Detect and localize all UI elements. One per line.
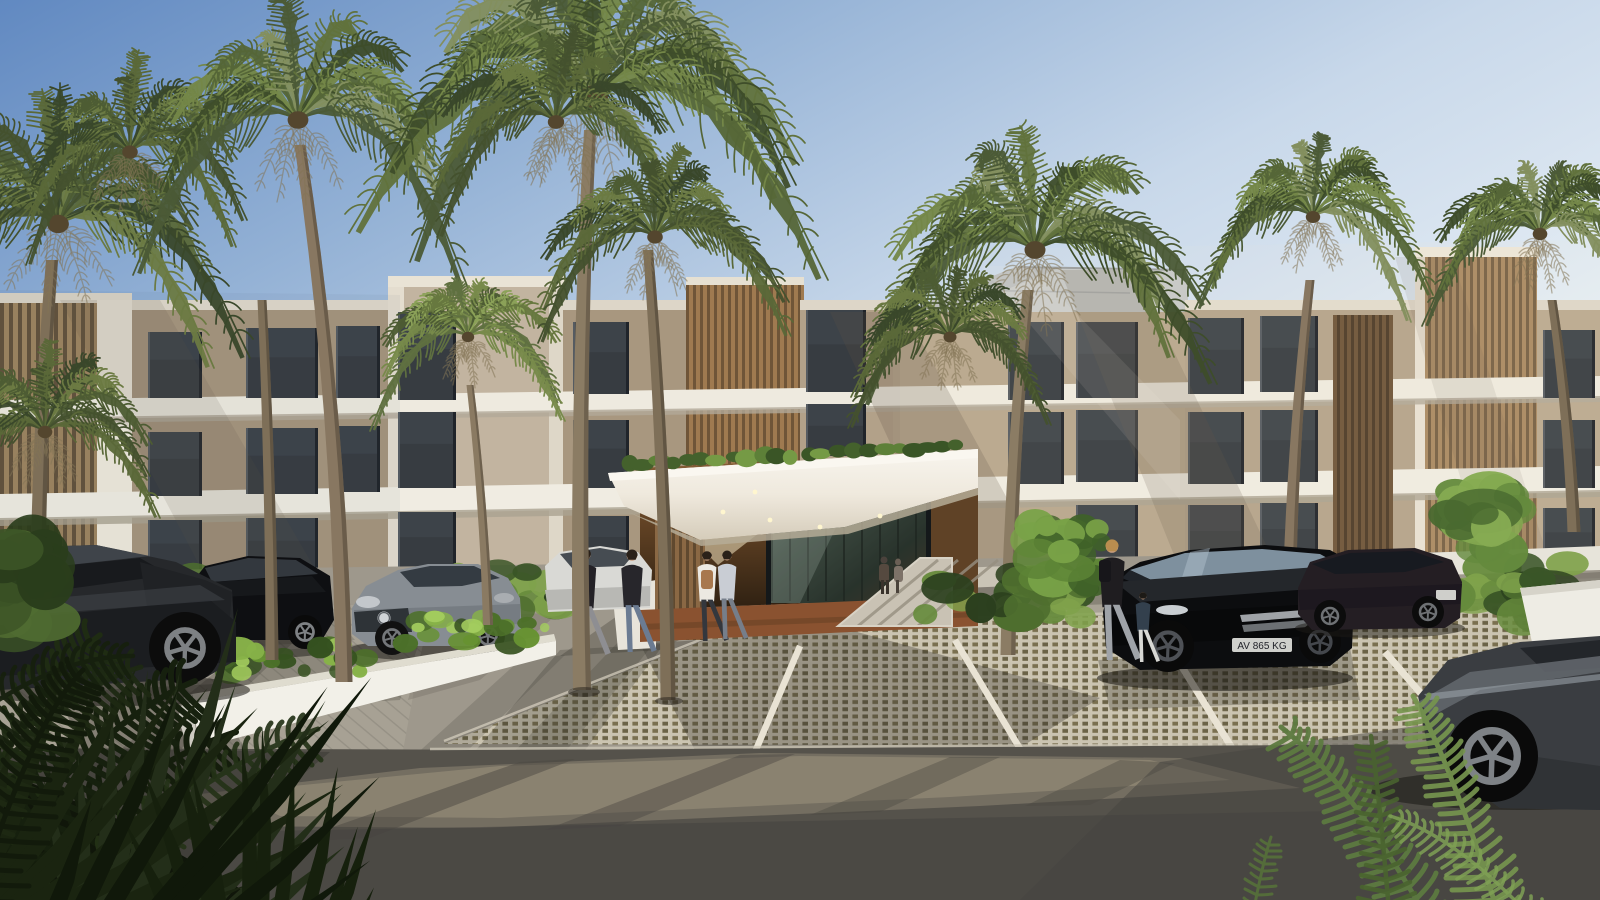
svg-text:AV 865 KG: AV 865 KG [1237,641,1287,652]
